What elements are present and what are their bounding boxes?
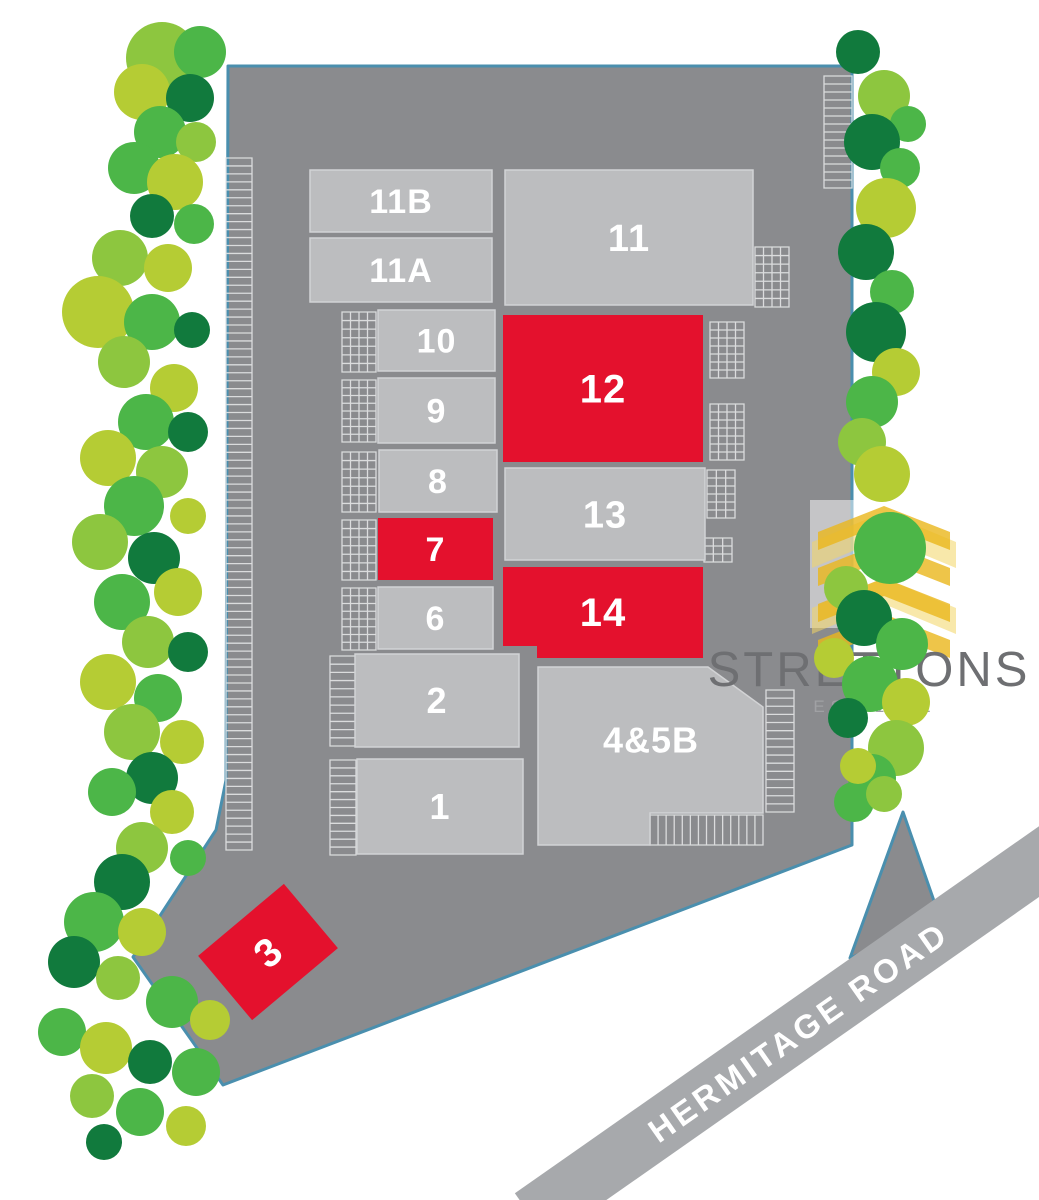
tree-icon [118, 908, 166, 956]
tree-icon [122, 616, 174, 668]
tree-icon [38, 1008, 86, 1056]
tree-icon [128, 1040, 172, 1084]
tree-icon [168, 632, 208, 672]
unit-13-label: 13 [583, 494, 627, 536]
unit-11B-label: 11B [369, 183, 433, 221]
tree-icon [144, 244, 192, 292]
unit-12-label: 12 [580, 368, 627, 412]
unit-10-label: 10 [417, 322, 457, 360]
unit-1-label: 1 [429, 786, 450, 827]
tree-icon [130, 194, 174, 238]
unit-6-label: 6 [426, 600, 446, 638]
tree-icon [172, 1048, 220, 1096]
site-plan: 11B11A10987621111213144&5B3 HERMITAGE RO… [0, 0, 1039, 1200]
unit-8-label: 8 [428, 463, 448, 501]
tree-icon [882, 678, 930, 726]
tree-icon [166, 1106, 206, 1146]
tree-icon [88, 768, 136, 816]
tree-icon [866, 776, 902, 812]
unit-2-label: 2 [426, 680, 447, 721]
tree-icon [70, 1074, 114, 1118]
tree-icon [174, 26, 226, 78]
unit-4and5B-label: 4&5B [603, 720, 699, 761]
unit-14-label: 14 [580, 591, 627, 635]
tree-icon [80, 1022, 132, 1074]
unit-11-label: 11 [608, 218, 650, 260]
tree-icon [80, 654, 136, 710]
tree-icon [98, 336, 150, 388]
road-label: HERMITAGE ROAD [641, 914, 955, 1150]
unit-9-label: 9 [427, 392, 447, 430]
tree-icon [190, 1000, 230, 1040]
site-plan-canvas: 11B11A10987621111213144&5B3 HERMITAGE RO… [0, 0, 1039, 1200]
tree-icon [174, 312, 210, 348]
tree-icon [170, 498, 206, 534]
tree-icon [168, 412, 208, 452]
tree-icon [86, 1124, 122, 1160]
tree-icon [104, 704, 160, 760]
tree-icon [174, 204, 214, 244]
tree-icon [170, 840, 206, 876]
tree-icon [96, 956, 140, 1000]
tree-icon [828, 698, 868, 738]
tree-icon [48, 936, 100, 988]
tree-icon [836, 30, 880, 74]
tree-icon [154, 568, 202, 616]
tree-icon [116, 1088, 164, 1136]
tree-icon [854, 446, 910, 502]
unit-11A-label: 11A [369, 252, 433, 290]
unit-7-label: 7 [426, 531, 446, 569]
tree-icon [854, 512, 926, 584]
tree-icon [840, 748, 876, 784]
tree-icon [72, 514, 128, 570]
